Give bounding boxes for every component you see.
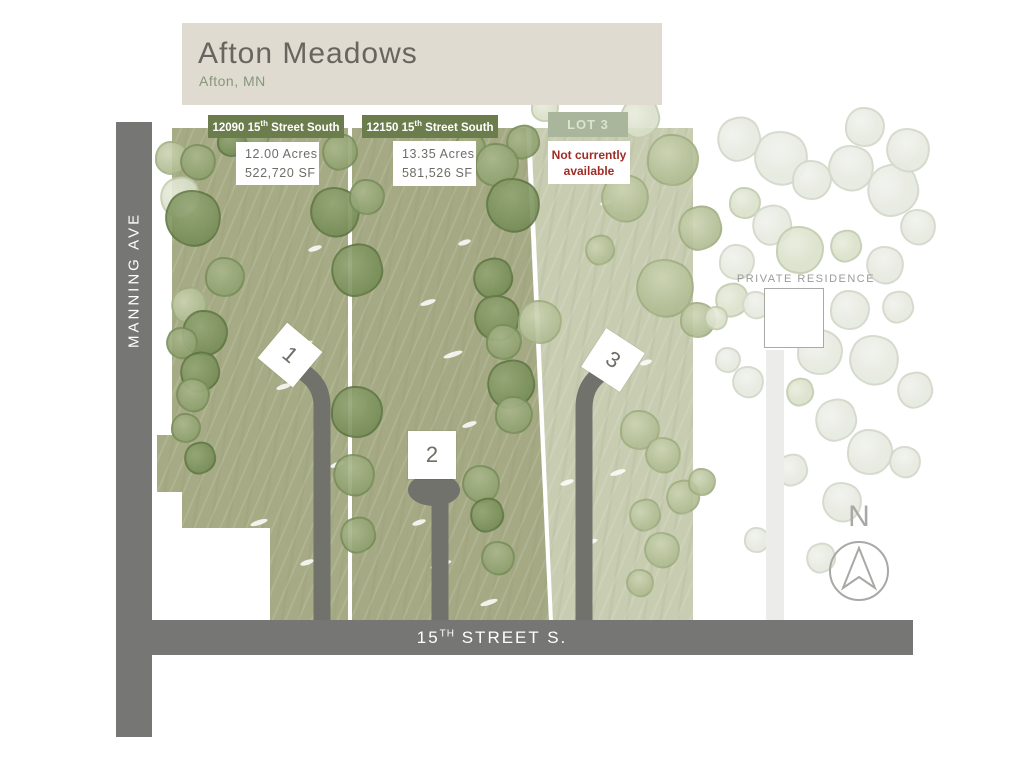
lot1-address-text: 12090 15th Street South [212,119,339,134]
lot1-sf: 522,720 SF [245,164,319,183]
header-banner: Afton Meadows Afton, MN [182,23,662,105]
lot1-address-banner: 12090 15th Street South [208,115,344,138]
private-residence-house [764,288,824,348]
private-residence-label: PRIVATE RESIDENCE [716,273,896,285]
lot2-address-text: 12150 15th Street South [366,119,493,134]
lot2-sf: 581,526 SF [402,164,476,183]
lot2-info-box: 13.35 Acres 581,526 SF [393,141,476,186]
manning-ave-label: MANNING AVE [116,160,152,400]
north-label: N [820,500,898,534]
15th-street-label: 15TH STREET S. [152,620,832,655]
lot3-status-line2: available [564,163,615,179]
lot2-address-banner: 12150 15th Street South [362,115,498,138]
street-label-text: 15TH STREET S. [417,628,568,648]
north-arrow-icon [828,540,890,602]
lot1-info-box: 12.00 Acres 522,720 SF [236,142,319,185]
site-plan-canvas: MANNING AVE 15TH STREET S. Afton Meadows… [0,0,1024,768]
lot2-acres: 13.35 Acres [402,145,476,164]
page-subtitle: Afton, MN [199,73,266,89]
lot3-driveway [584,372,603,626]
north-compass: N [820,500,898,610]
private-driveway [766,350,784,622]
lot3-banner: LOT 3 [548,112,628,137]
lot1-driveway [303,372,322,626]
page-title: Afton Meadows [198,37,418,71]
lot2-marker: 2 [408,431,456,479]
lot3-status-box: Not currently available [548,141,630,184]
lot1-acres: 12.00 Acres [245,145,319,164]
lot3-status-line1: Not currently [552,147,627,163]
